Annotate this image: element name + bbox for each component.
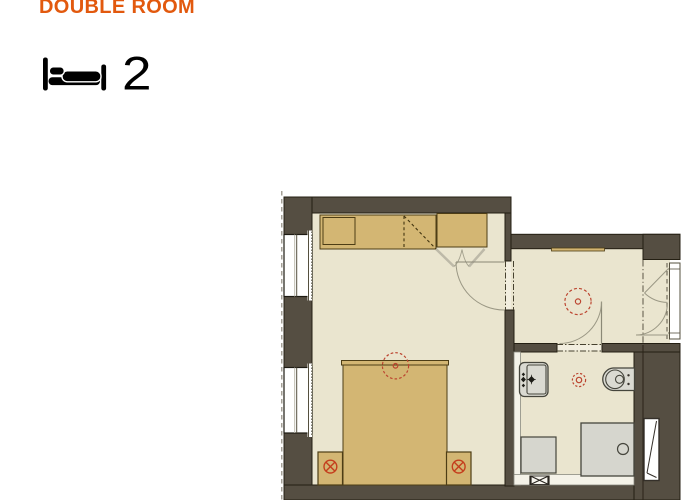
svg-text:2: 2	[122, 47, 152, 100]
